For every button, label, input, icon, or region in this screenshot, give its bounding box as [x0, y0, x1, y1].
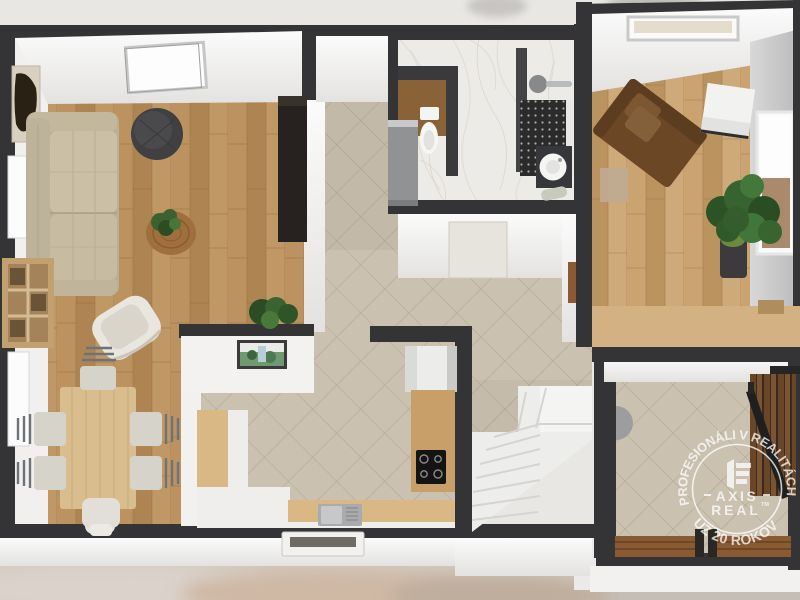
svg-text:AXIS: AXIS [716, 489, 759, 504]
svg-text:REAL: REAL [711, 503, 761, 518]
svg-text:TM: TM [761, 502, 769, 508]
